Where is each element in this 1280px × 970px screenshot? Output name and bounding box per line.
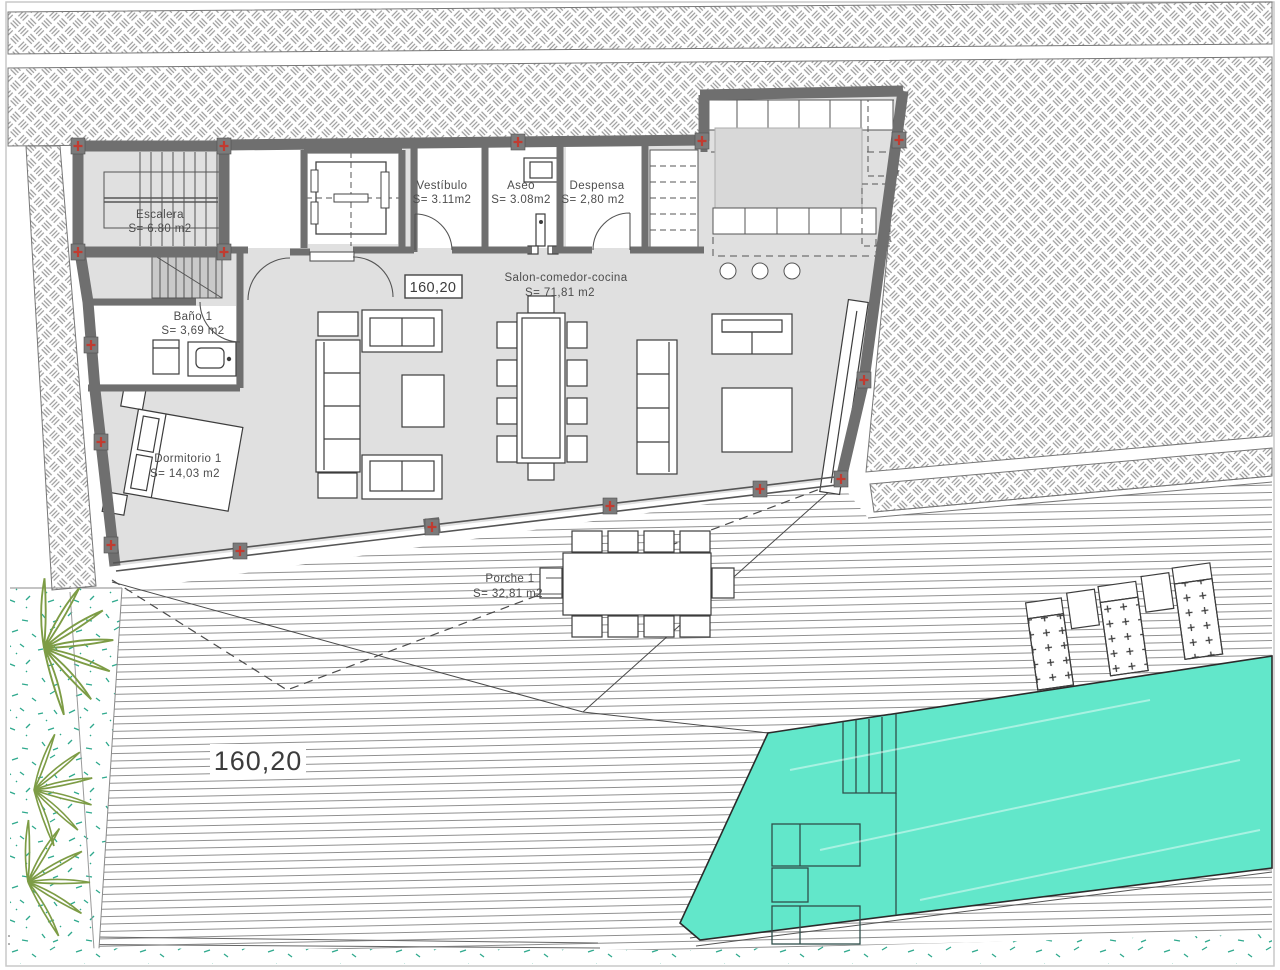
toilet [153,340,179,374]
side-table-1 [1067,589,1100,629]
pantry-shelves [650,150,698,248]
tv-cabinet [712,314,792,354]
bano-area: S= 3,69 m2 [161,325,224,337]
kitchen-stool [720,263,736,279]
porch-chair [572,531,602,552]
escalera-label: Escalera [136,209,184,221]
vestibulo-label: Vestíbulo [417,180,468,192]
loveseat-bottom [362,455,442,499]
rug [722,388,792,452]
dining-chair [497,322,517,348]
stairs-lower-flight [152,254,222,298]
sofa-right [637,340,677,474]
aseo-area: S= 3.08m2 [491,194,551,206]
porche-area: S= 32,81 m2 [473,588,543,600]
floor-plan-canvas: Escalera S= 6.80 m2 Vestíbulo S= 3.11m2 … [0,0,1280,970]
escalera-area: S= 6.80 m2 [128,223,191,235]
aseo-door-leaf [536,214,545,246]
dormitorio-area: S= 14,03 m2 [150,468,220,480]
elevation-ground-value: 160,20 [214,746,303,776]
salon-label: Salon-comedor-cocina [504,272,627,284]
sofa-left [316,340,360,472]
coffee-table [402,375,444,427]
elevation-boxed-value: 160,20 [410,280,457,296]
porch-table [563,553,711,615]
hall-floor [228,146,302,248]
despensa-area: S= 2,80 m2 [561,194,624,206]
side-table [318,312,358,336]
elevator [306,152,400,246]
salon-area: S= 71,81 m2 [525,287,595,299]
bano-label: Baño 1 [174,311,213,323]
red-survey-marker [71,138,85,154]
side-table-2 [318,473,357,498]
side-table-2 [1141,573,1174,613]
dormitorio-label: Dormitorio 1 [154,453,221,465]
vestibulo-area: S= 3.11m2 [413,194,472,206]
floor-plan-page: Escalera S= 6.80 m2 Vestíbulo S= 3.11m2 … [0,0,1280,970]
kitchen-island [715,128,862,208]
porche-label: Porche 1 [485,573,534,585]
despensa-label: Despensa [570,180,625,192]
loveseat-top [362,310,442,352]
aseo-label: Aseo [507,180,535,192]
